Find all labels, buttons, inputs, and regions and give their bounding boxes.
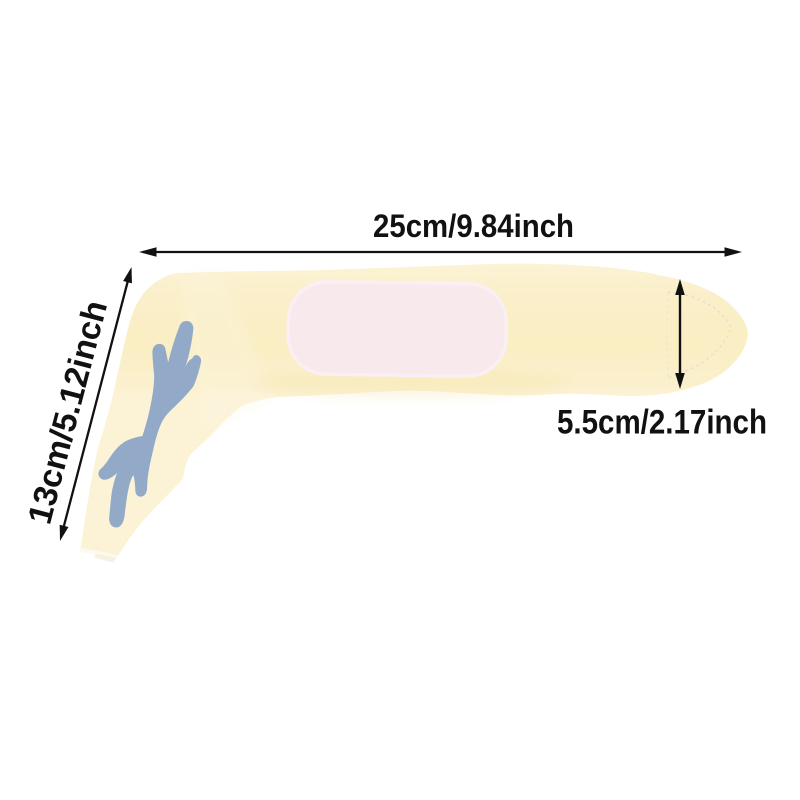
svg-text:5.5cm/2.17inch: 5.5cm/2.17inch (557, 404, 767, 442)
svg-text:25cm/9.84inch: 25cm/9.84inch (373, 208, 574, 244)
